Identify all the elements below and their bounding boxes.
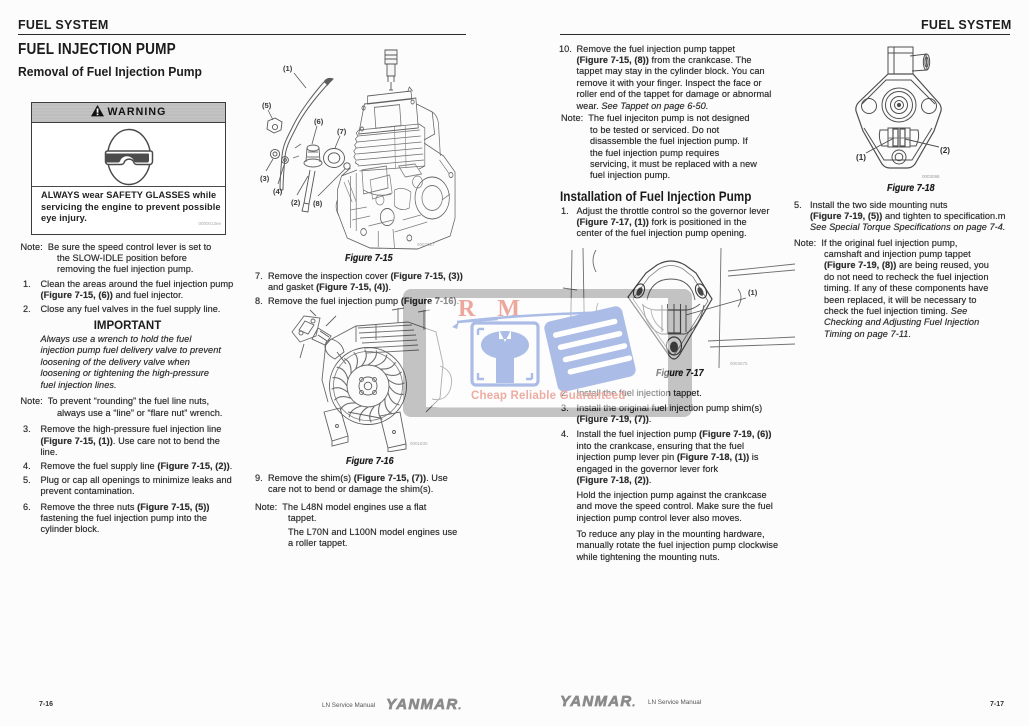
- svg-text:(7): (7): [337, 127, 347, 136]
- svg-text:(1): (1): [748, 288, 758, 297]
- svg-text:(8): (8): [313, 199, 323, 208]
- svg-text:(2): (2): [940, 146, 950, 155]
- svg-text:0002027: 0002027: [417, 242, 435, 247]
- svg-text:(2): (2): [291, 198, 301, 207]
- svg-text:(1): (1): [283, 64, 293, 73]
- svg-text:(4): (4): [273, 187, 283, 196]
- svg-text:0001830: 0001830: [410, 441, 428, 446]
- svg-text:0003675: 0003675: [730, 361, 748, 366]
- svg-text:(6): (6): [314, 117, 324, 126]
- svg-text:0003098: 0003098: [922, 174, 940, 179]
- svg-text:(1): (1): [856, 153, 866, 162]
- svg-text:(5): (5): [262, 101, 272, 110]
- svg-text:(3): (3): [260, 174, 270, 183]
